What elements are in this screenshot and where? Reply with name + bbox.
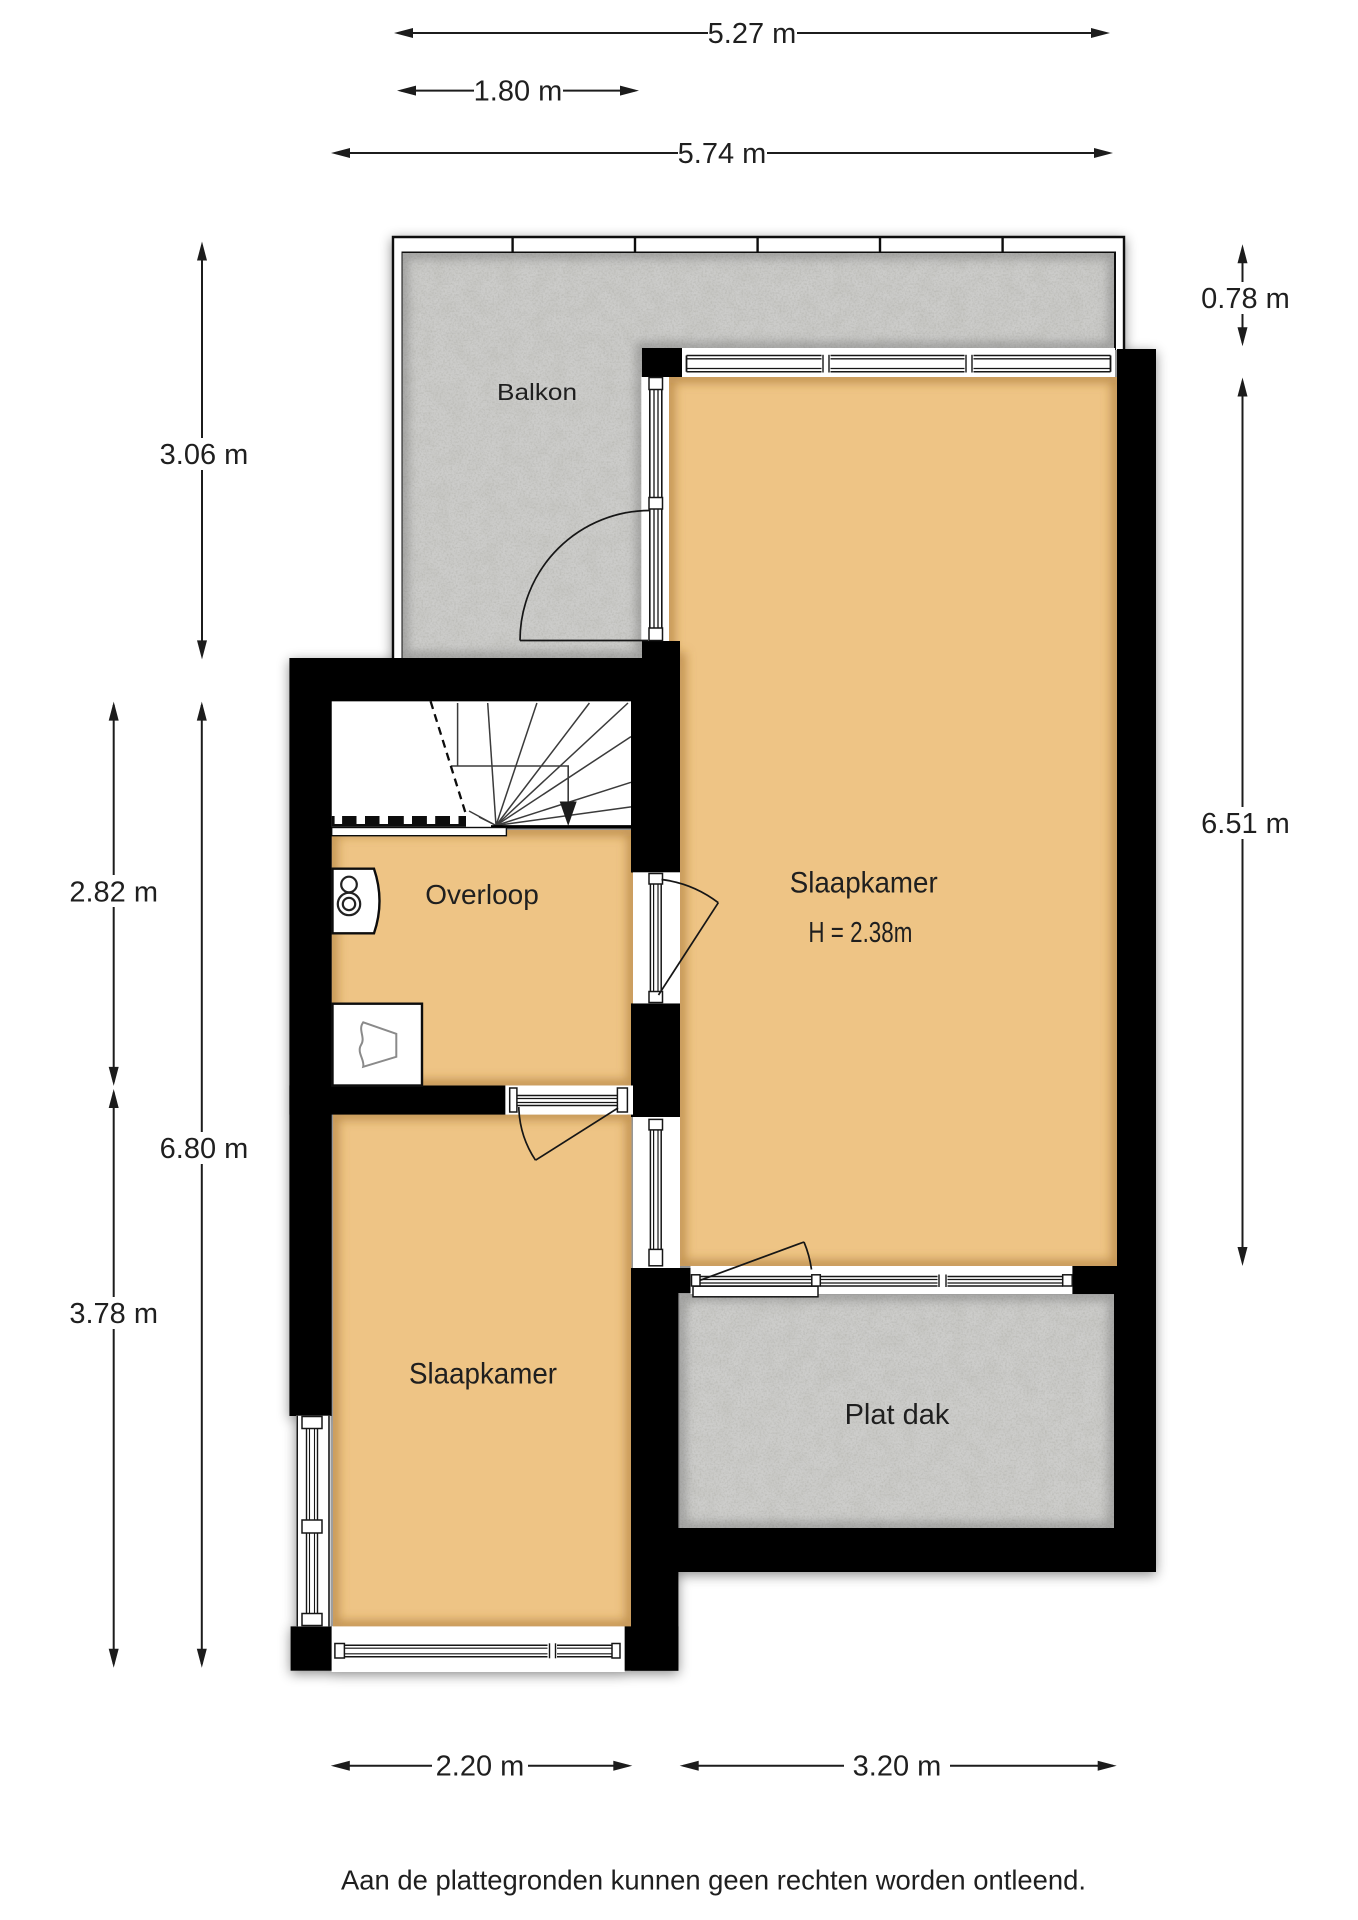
- svg-text:0.78 m: 0.78 m: [1201, 283, 1290, 315]
- svg-text:6.80 m: 6.80 m: [160, 1133, 249, 1165]
- svg-text:H = 2.38m: H = 2.38m: [808, 917, 912, 949]
- svg-text:3.78 m: 3.78 m: [69, 1298, 158, 1330]
- svg-text:Overloop: Overloop: [425, 879, 539, 910]
- svg-text:5.27 m: 5.27 m: [708, 18, 797, 50]
- svg-text:3.20 m: 3.20 m: [853, 1751, 942, 1783]
- svg-text:5.74 m: 5.74 m: [678, 138, 767, 170]
- svg-text:2.20 m: 2.20 m: [436, 1751, 525, 1783]
- svg-text:Balkon: Balkon: [497, 379, 577, 405]
- svg-text:Plat dak: Plat dak: [845, 1399, 950, 1431]
- svg-text:2.82 m: 2.82 m: [69, 877, 158, 909]
- svg-text:Slaapkamer: Slaapkamer: [790, 867, 938, 900]
- svg-text:1.80 m: 1.80 m: [474, 76, 563, 108]
- svg-text:Aan de plattegronden kunnen ge: Aan de plattegronden kunnen geen rechten…: [341, 1865, 1086, 1896]
- svg-text:3.06 m: 3.06 m: [160, 439, 249, 471]
- svg-text:6.51 m: 6.51 m: [1201, 808, 1290, 840]
- svg-text:Slaapkamer: Slaapkamer: [409, 1357, 557, 1390]
